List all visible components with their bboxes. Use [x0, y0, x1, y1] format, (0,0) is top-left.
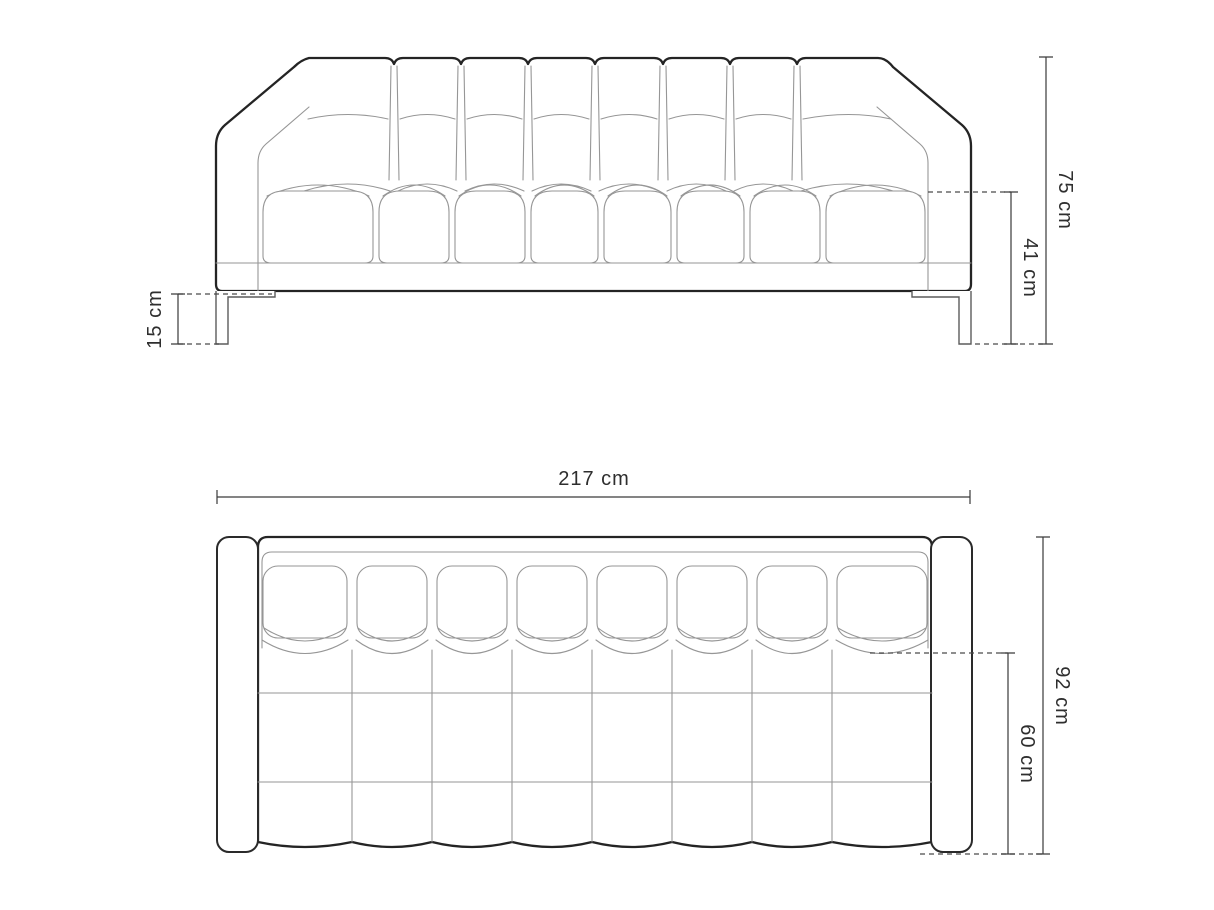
- dimension-line: [1001, 653, 1015, 854]
- front-leg-right: [912, 291, 971, 344]
- dimension-label-seat-depth: 60 cm: [1016, 724, 1038, 783]
- dimension-label-leg-height: 15 cm: [144, 289, 166, 348]
- dimension-label-overall-depth: 92 cm: [1051, 666, 1073, 725]
- dimension-line: [171, 294, 185, 344]
- dimension-overall-depth: 92 cm: [1036, 537, 1073, 854]
- top-armrest-left: [217, 537, 258, 852]
- top-back-cushion: [517, 566, 587, 638]
- diagram-canvas: 75 cm 41 cm 15 cm: [0, 0, 1214, 910]
- dimension-line: [1004, 192, 1018, 344]
- front-leg-left: [216, 291, 275, 344]
- top-back-cushion: [837, 566, 927, 638]
- dimension-line: [1036, 537, 1050, 854]
- dimension-label-overall-width: 217 cm: [558, 468, 630, 490]
- dimension-line: [217, 490, 970, 504]
- dimension-seat-depth: 60 cm: [1001, 653, 1038, 854]
- top-back-cushion: [357, 566, 427, 638]
- front-view: 75 cm 41 cm 15 cm: [144, 57, 1076, 349]
- dimension-line: [1039, 57, 1053, 344]
- top-back-cushion: [677, 566, 747, 638]
- top-back-cushion: [757, 566, 827, 638]
- top-back-cushion: [437, 566, 507, 638]
- top-back-cushion: [263, 566, 347, 638]
- top-view: 217 cm 92 cm 60 cm: [217, 468, 1073, 854]
- dimension-seat-height: 41 cm: [1004, 192, 1041, 344]
- top-armrest-right: [931, 537, 972, 852]
- top-back-cushion: [597, 566, 667, 638]
- dimension-overall-height: 75 cm: [1039, 57, 1076, 344]
- dimension-label-overall-height: 75 cm: [1054, 170, 1076, 229]
- dimension-label-seat-height: 41 cm: [1019, 238, 1041, 297]
- sofa-dimension-diagram: 75 cm 41 cm 15 cm: [0, 0, 1214, 910]
- dimension-leg-height: 15 cm: [144, 289, 185, 348]
- dimension-overall-width: 217 cm: [217, 468, 970, 504]
